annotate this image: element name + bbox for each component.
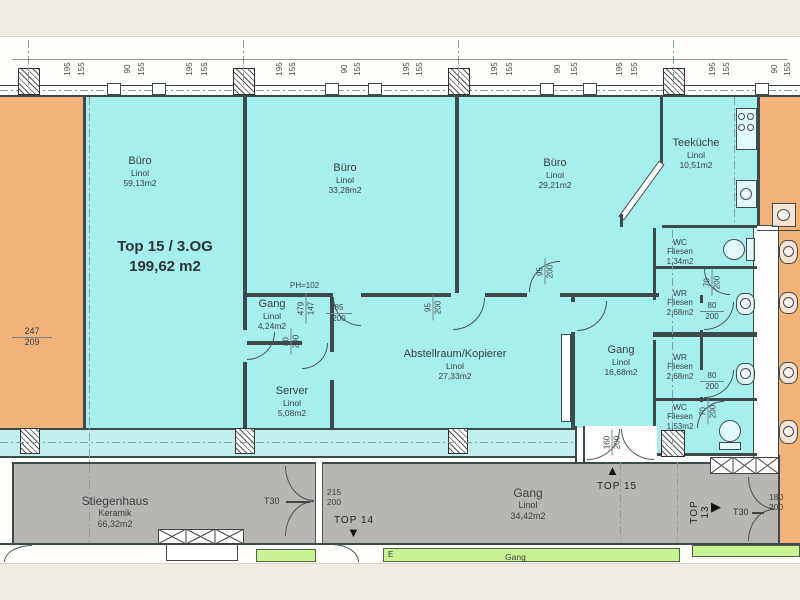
pillar: [18, 68, 40, 95]
dim-label: 195: [708, 56, 718, 82]
room-label-gang-mid: Gang Linol 16,68m2: [592, 344, 650, 377]
region-room-green-3: [692, 545, 800, 557]
room-name: WR: [656, 288, 704, 298]
top15-label: TOP 15: [597, 481, 637, 492]
room-material: Fliesen: [656, 362, 704, 372]
top14-arrow-icon: ▼: [347, 526, 360, 539]
dim-label: 195: [275, 56, 285, 82]
room-material: Fliesen: [656, 412, 704, 422]
room-name: WR: [656, 352, 704, 362]
pillar: [20, 428, 40, 454]
top13-label: TOP 13: [689, 492, 711, 532]
room-label-wr-top: WR Fliesen 2,68m2: [656, 288, 704, 318]
ph-label: PH=102: [290, 281, 319, 290]
pillar: [235, 428, 255, 454]
room-name: Stiegenhaus: [45, 494, 185, 508]
window-post: [583, 83, 597, 95]
room-area: 34,42m2: [478, 511, 578, 522]
wall: [0, 543, 800, 545]
room-material: Linol: [240, 311, 304, 321]
room-area: 1,53m2: [656, 422, 704, 432]
window-post: [152, 83, 166, 95]
dim-label: 195: [615, 56, 625, 82]
dim-label: 90: [123, 56, 133, 82]
room-label-abstellraum: Abstellraum/Kopierer Linol 27,33m2: [375, 348, 535, 381]
dim-label: 90: [553, 56, 563, 82]
dim-label: 155: [415, 56, 425, 82]
dim-value: 200: [708, 399, 718, 425]
dim-label: 155: [77, 56, 87, 82]
dim-value: 200: [612, 430, 622, 456]
wall: [757, 97, 760, 225]
room-label-buero2: Büro Linol 33,28m2: [295, 162, 395, 195]
wall: [662, 225, 757, 228]
shaft: [753, 225, 779, 458]
room-label-teekueche: Teeküche Linol 10,51m2: [650, 137, 742, 170]
dim-value: 200: [712, 270, 722, 296]
window-post: [540, 83, 554, 95]
dim-value: 70: [703, 278, 712, 287]
toilet-fixture: [779, 420, 798, 444]
room-label-gang-corridor: Gang Linol 34,42m2: [478, 486, 578, 522]
dim-label: 195: [402, 56, 412, 82]
room-label-wr-bottom: WR Fliesen 2,68m2: [656, 352, 704, 382]
dim-pair: 70 200: [703, 270, 722, 296]
wall: [571, 332, 575, 428]
elevator-shaft: [158, 529, 244, 544]
room-area: 66,32m2: [45, 519, 185, 530]
room-material: Linol: [375, 361, 535, 371]
wall: [243, 362, 247, 428]
room-material: Linol: [295, 175, 395, 185]
dim-label: 155: [505, 56, 515, 82]
dim-pair: 180 200: [762, 493, 790, 512]
axis-line: [458, 40, 459, 86]
room-material: Fliesen: [656, 298, 704, 308]
dim-value: 200: [700, 381, 724, 392]
dim-value: 147: [306, 294, 316, 324]
dim-label: 155: [722, 56, 732, 82]
floorplan: 195 155 90 155 195 155 195 155 90 155 19…: [0, 0, 800, 600]
dim-pair: 160 200: [603, 430, 622, 456]
wall: [485, 293, 527, 297]
room-name: Teeküche: [650, 137, 742, 150]
dim-value: 85: [335, 303, 344, 313]
radiator: [710, 457, 779, 474]
room-material: Linol: [478, 500, 578, 511]
dim-label: 155: [630, 56, 640, 82]
leader-line: [752, 512, 764, 514]
wall: [243, 293, 333, 297]
dim-value: 200: [433, 295, 443, 321]
axis-line: [677, 462, 678, 543]
room-material: Keramik: [45, 508, 185, 519]
room-label-gang-top: Gang Linol 4,24m2: [240, 298, 304, 331]
room-name: Gang: [478, 486, 578, 500]
sink-fixture: [736, 293, 755, 315]
dim-pair: 80 200: [282, 329, 301, 355]
pillar: [233, 68, 255, 95]
wall: [455, 97, 459, 293]
dim-value: 200: [545, 259, 555, 285]
room-name: Büro: [505, 157, 605, 170]
room-label-server: Server Linol 5,08m2: [262, 385, 322, 418]
room-material: Linol: [592, 357, 650, 367]
dim-label: 155: [288, 56, 298, 82]
dim-value: 479: [297, 302, 306, 315]
dim-value: 200: [320, 498, 348, 508]
dim-value: 95: [424, 303, 433, 312]
dim-label: 155: [783, 56, 793, 82]
dim-value: 95: [536, 267, 545, 276]
room-name: Server: [262, 385, 322, 398]
dim-pair: 70 200: [699, 399, 718, 425]
room-label-wc-bottom: WC Fliesen 1,53m2: [656, 402, 704, 432]
room-name: Gang: [240, 298, 304, 311]
axis-line: [243, 40, 244, 86]
pillar: [661, 430, 685, 457]
unit-title-line2: 199,62 m2: [75, 257, 255, 277]
dim-pair: 85 200: [326, 303, 352, 323]
sink-fixture: [736, 363, 755, 385]
window-post: [755, 83, 769, 95]
dim-label: 155: [200, 56, 210, 82]
room-area: 29,21m2: [505, 180, 605, 190]
room-material: Fliesen: [656, 247, 704, 257]
window-post: [107, 83, 121, 95]
dim-value: 200: [326, 313, 352, 324]
room-name: Gang: [592, 344, 650, 357]
room-name: WC: [656, 402, 704, 412]
pillar: [448, 68, 470, 95]
room-area: 2,68m2: [656, 372, 704, 382]
room-material: Linol: [505, 170, 605, 180]
room-label-gang-south: Gang: [505, 552, 526, 562]
wall: [12, 462, 14, 543]
dim-pair: 95 200: [424, 295, 443, 321]
top15-arrow-icon: ▲: [606, 464, 619, 477]
axis-line: [0, 442, 575, 443]
axis-line: [620, 462, 621, 543]
dim-pair: 80 200: [700, 371, 724, 391]
room-area: 16,68m2: [592, 367, 650, 377]
dim-label: 90: [340, 56, 350, 82]
counter-line: [757, 230, 800, 231]
wall: [571, 297, 575, 302]
sink-fixture: [779, 362, 798, 384]
dim-value: 70: [699, 407, 708, 416]
pillar: [663, 68, 685, 95]
dim-value: 209: [12, 337, 52, 348]
dim-pair: 479 147: [297, 294, 316, 324]
top13-arrow-icon: ▶: [711, 500, 721, 513]
room-area: 27,33m2: [375, 371, 535, 381]
dim-label: 90: [770, 56, 780, 82]
room-area: 59,13m2: [90, 178, 190, 188]
dim-label: 155: [570, 56, 580, 82]
dim-value: 200: [700, 311, 724, 322]
dim-value: 160: [603, 436, 612, 449]
dim-pair: 95 200: [536, 259, 555, 285]
room-name: WC: [656, 237, 704, 247]
room-area: 10,51m2: [650, 160, 742, 170]
unit-title: Top 15 / 3.OG 199,62 m2: [75, 237, 255, 277]
room-name: Abstellraum/Kopierer: [375, 348, 535, 361]
room-material: Linol: [650, 150, 742, 160]
room-material: Linol: [90, 168, 190, 178]
room-label-stiegenhaus: Stiegenhaus Keramik 66,32m2: [45, 494, 185, 530]
sink-fixture: [779, 292, 798, 314]
room-material: Linol: [262, 398, 322, 408]
axis-line: [673, 40, 674, 86]
room-label-e: E: [388, 550, 393, 559]
dim-label: 195: [63, 56, 73, 82]
dim-label: 195: [490, 56, 500, 82]
window-dim-left: 247 209: [12, 327, 52, 347]
unit-title-line1: Top 15 / 3.OG: [75, 237, 255, 257]
room-area: 2,68m2: [656, 308, 704, 318]
wall: [575, 426, 577, 462]
room-area: 33,28m2: [295, 185, 395, 195]
room-area: 5,08m2: [262, 408, 322, 418]
dim-pair: 80 200: [700, 301, 724, 321]
wall: [330, 380, 334, 428]
dim-pair: 215 200: [320, 488, 348, 507]
dim-value: 200: [291, 329, 301, 355]
region-neighbor-left: [0, 97, 83, 428]
room-name: Büro: [295, 162, 395, 175]
pillar: [448, 428, 468, 454]
dim-label: 195: [185, 56, 195, 82]
leader-line: [286, 501, 310, 503]
dim-value: 80: [708, 301, 717, 311]
dim-value: 200: [762, 503, 790, 513]
dim-label: 155: [353, 56, 363, 82]
room-label-wc-top: WC Fliesen 1,34m2: [656, 237, 704, 267]
region-room-green-1: [256, 549, 316, 562]
t30-left-label: T30: [264, 496, 280, 506]
elevator-car: [166, 544, 238, 561]
wall-pilaster: [561, 334, 571, 422]
room-area: 1,34m2: [656, 257, 704, 267]
room-label-buero1: Büro Linol 59,13m2: [90, 155, 190, 188]
room-name: Büro: [90, 155, 190, 168]
room-label-buero3: Büro Linol 29,21m2: [505, 157, 605, 190]
window-sill-band: [0, 428, 575, 458]
t30-right-label: T30: [733, 507, 749, 517]
window-post: [368, 83, 382, 95]
dim-label: 155: [137, 56, 147, 82]
sink-fixture: [736, 180, 757, 208]
toilet-fixture: [722, 236, 755, 263]
wall: [653, 332, 757, 337]
wall: [620, 214, 623, 227]
sink-fixture: [772, 203, 796, 227]
window-post: [325, 83, 339, 95]
dim-value: 247: [24, 327, 39, 337]
region-room-green-2: [383, 548, 680, 562]
dim-value: 80: [282, 337, 291, 346]
toilet-fixture: [779, 240, 798, 264]
axis-line: [28, 40, 29, 86]
dim-value: 80: [708, 371, 717, 381]
